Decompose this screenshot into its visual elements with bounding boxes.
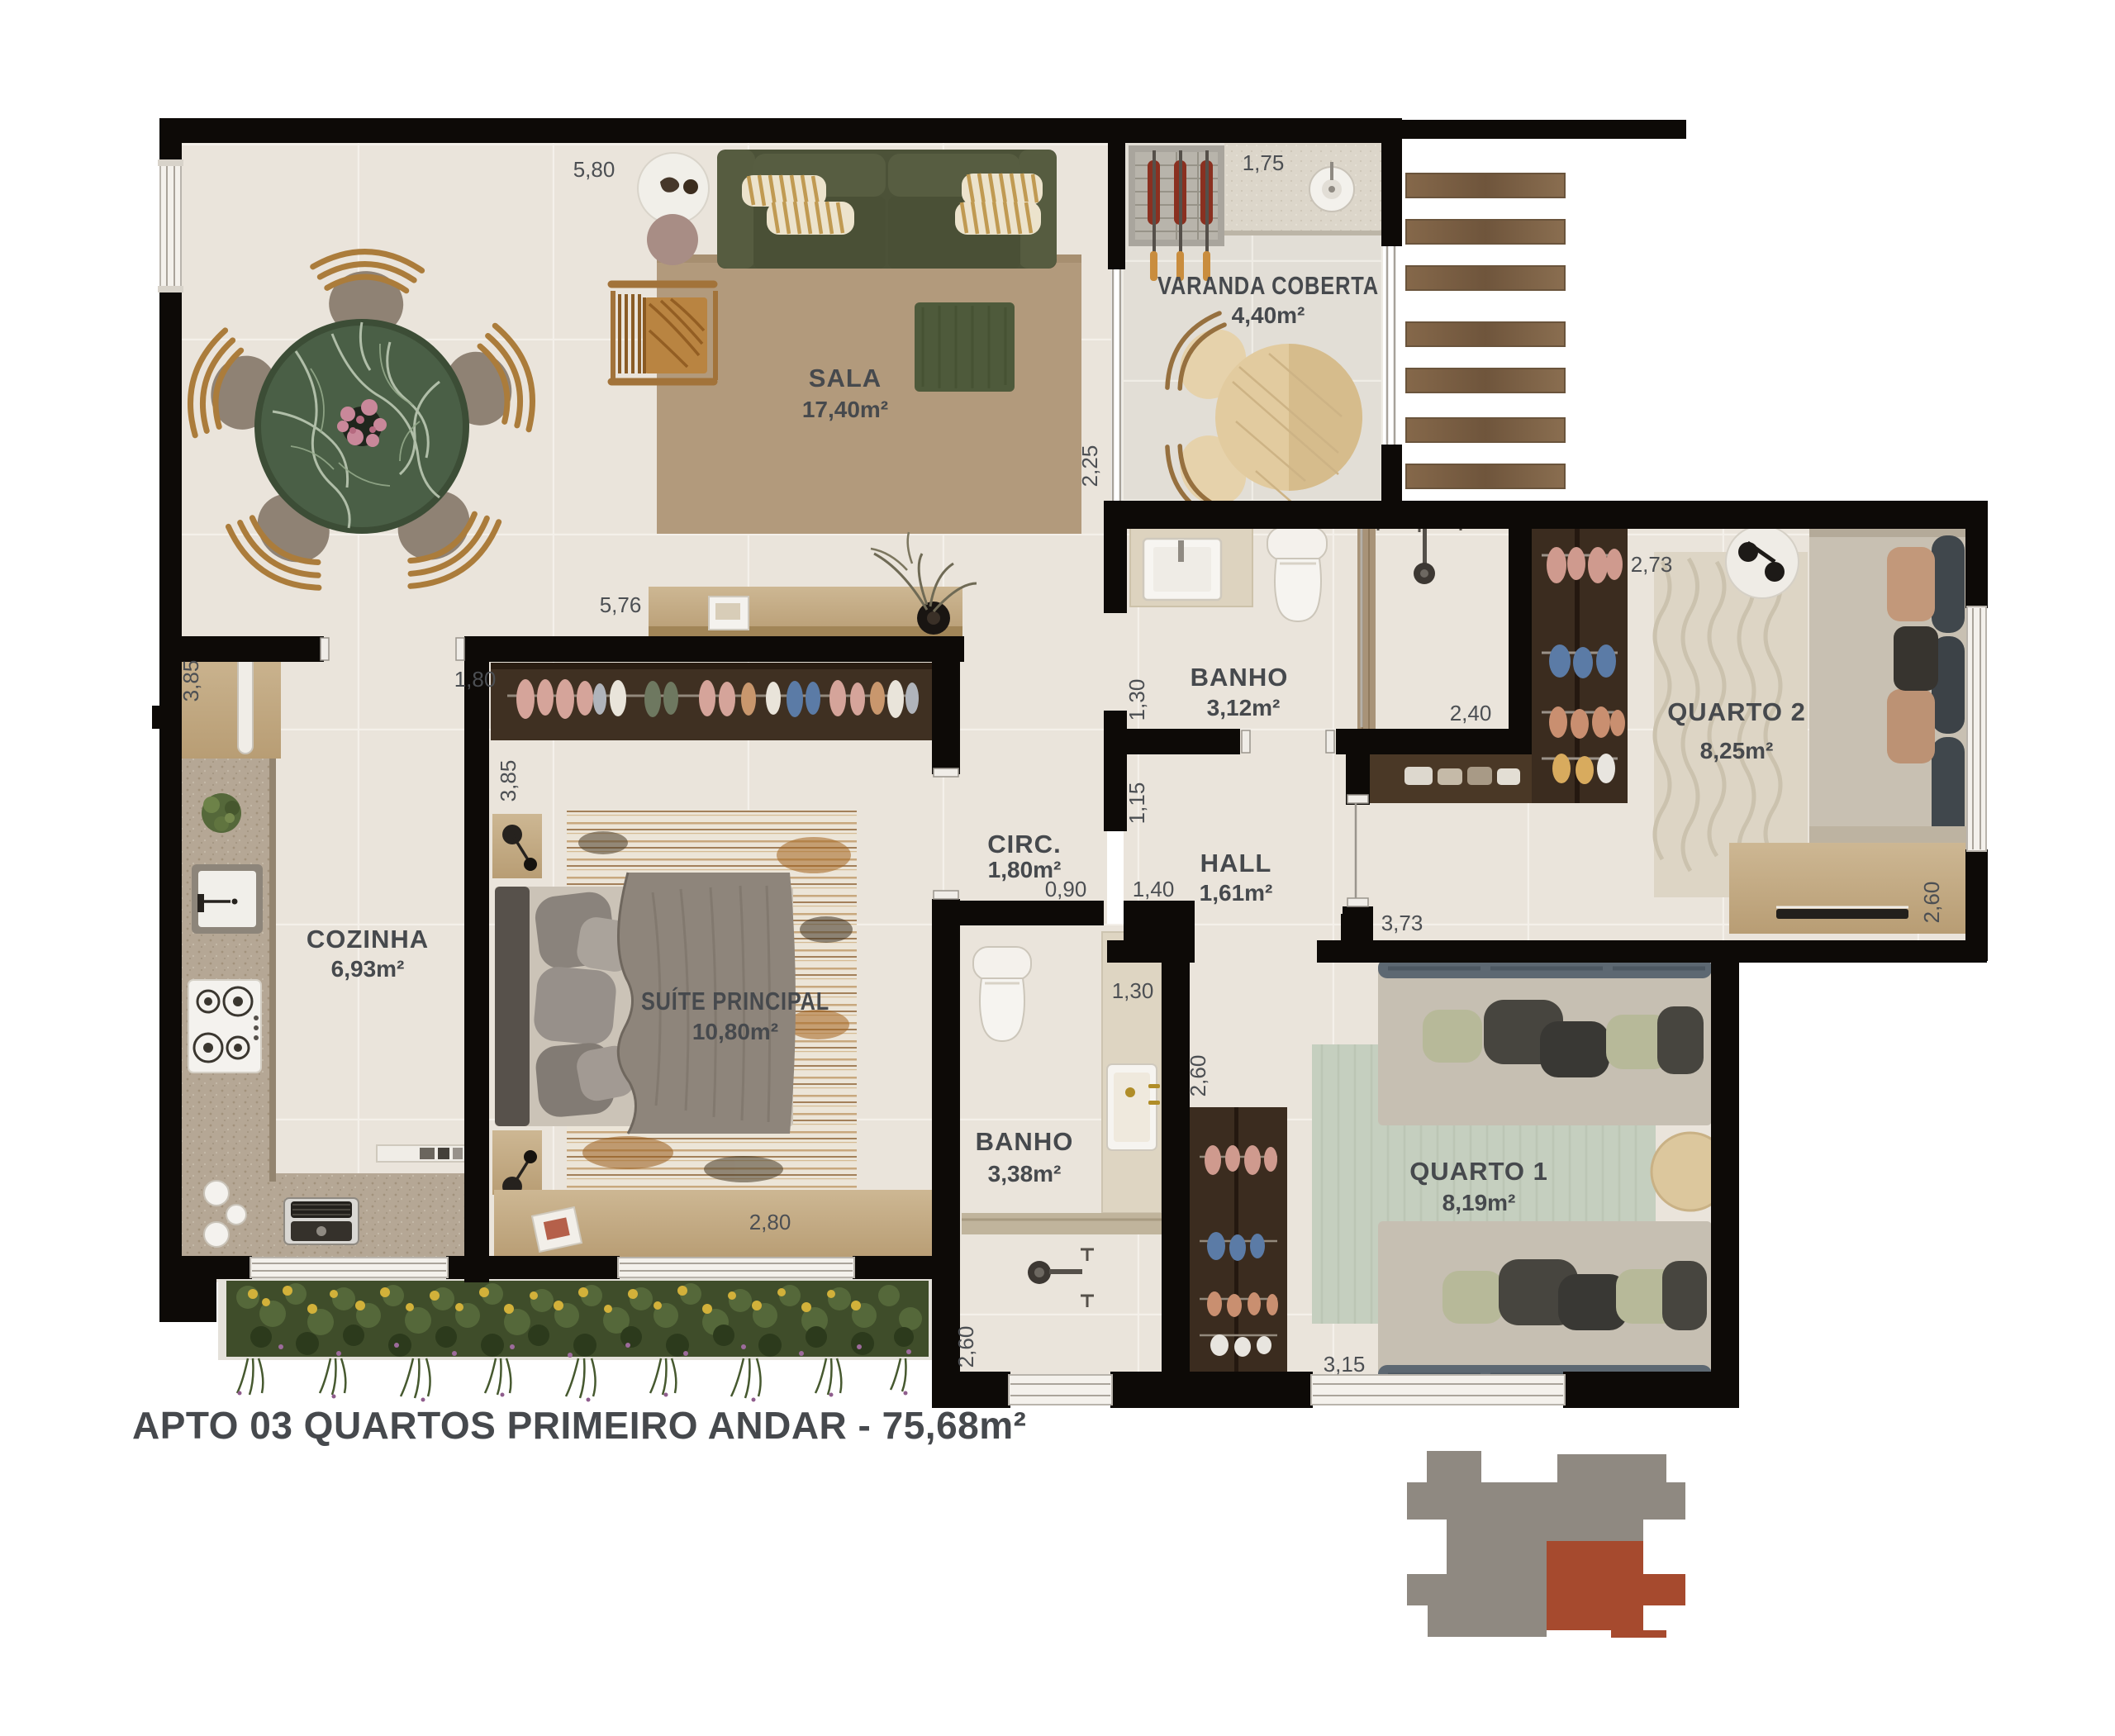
svg-text:QUARTO 1: QUARTO 1 <box>1409 1157 1548 1186</box>
svg-text:3,38m²: 3,38m² <box>988 1161 1062 1187</box>
svg-text:1,80: 1,80 <box>454 667 497 692</box>
svg-text:5,76: 5,76 <box>600 592 642 617</box>
svg-text:VARANDA COBERTA: VARANDA COBERTA <box>1157 271 1379 300</box>
svg-text:3,85: 3,85 <box>496 760 520 802</box>
svg-text:2,60: 2,60 <box>1186 1055 1210 1097</box>
svg-text:BANHO: BANHO <box>976 1127 1074 1156</box>
svg-text:SUÍTE PRINCIPAL: SUÍTE PRINCIPAL <box>641 987 829 1015</box>
svg-text:10,80m²: 10,80m² <box>692 1019 778 1044</box>
svg-text:1,15: 1,15 <box>1124 782 1149 825</box>
svg-text:17,40m²: 17,40m² <box>802 397 888 422</box>
svg-text:2,40: 2,40 <box>1450 701 1492 725</box>
svg-text:BANHO: BANHO <box>1191 663 1289 692</box>
svg-text:4,40m²: 4,40m² <box>1232 302 1305 328</box>
svg-text:8,19m²: 8,19m² <box>1442 1190 1516 1215</box>
svg-text:1,30: 1,30 <box>1124 679 1149 721</box>
svg-text:3,73: 3,73 <box>1381 911 1423 935</box>
svg-text:2,60: 2,60 <box>953 1326 978 1368</box>
svg-text:CIRC.: CIRC. <box>987 830 1061 858</box>
svg-text:2,25: 2,25 <box>1077 445 1102 488</box>
svg-text:1,30: 1,30 <box>1112 978 1154 1003</box>
svg-text:1,61m²: 1,61m² <box>1200 880 1273 906</box>
svg-text:COZINHA: COZINHA <box>307 925 429 954</box>
svg-text:8,25m²: 8,25m² <box>1700 738 1774 763</box>
svg-text:5,80: 5,80 <box>573 157 615 182</box>
svg-text:HALL: HALL <box>1200 849 1272 878</box>
svg-text:QUARTO 2: QUARTO 2 <box>1667 697 1806 726</box>
svg-text:1,40: 1,40 <box>1133 877 1175 901</box>
svg-text:2,60: 2,60 <box>1919 882 1944 924</box>
svg-text:3,12m²: 3,12m² <box>1207 695 1281 721</box>
svg-text:SALA: SALA <box>809 364 882 392</box>
svg-text:APTO 03 QUARTOS PRIMEIRO ANDAR: APTO 03 QUARTOS PRIMEIRO ANDAR - 75,68m² <box>132 1404 1026 1447</box>
svg-text:3,15: 3,15 <box>1324 1352 1366 1377</box>
svg-text:3,85: 3,85 <box>178 660 203 702</box>
svg-text:6,93m²: 6,93m² <box>331 956 405 982</box>
svg-text:0,90: 0,90 <box>1045 877 1087 901</box>
svg-text:2,73: 2,73 <box>1631 552 1673 577</box>
svg-text:1,75: 1,75 <box>1243 150 1285 175</box>
svg-text:2,80: 2,80 <box>749 1210 791 1234</box>
